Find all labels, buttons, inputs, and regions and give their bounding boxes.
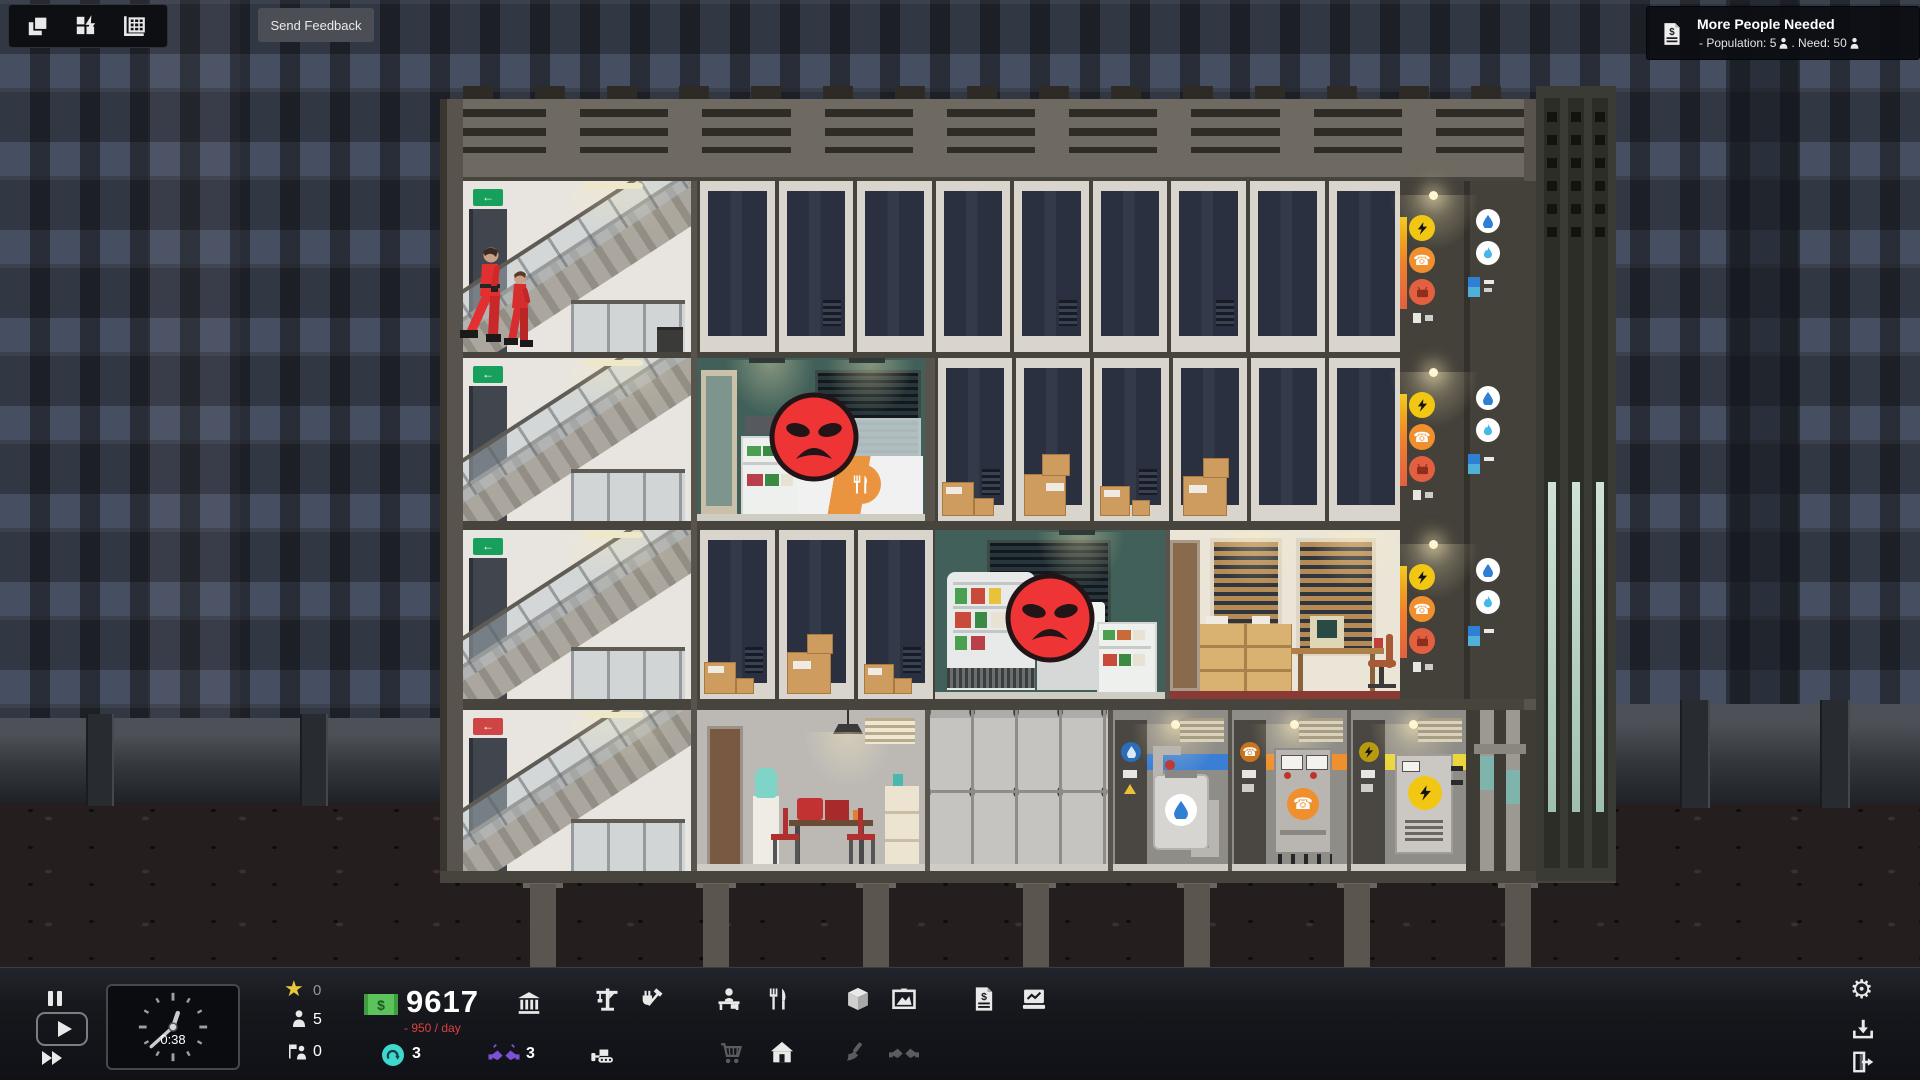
- support-pillar: [703, 884, 729, 970]
- exit-sign: ←: [473, 366, 503, 383]
- stairwell-floor2[interactable]: ←: [463, 358, 691, 521]
- exit-sign: ←: [473, 538, 503, 555]
- shaft-equipment: [1468, 464, 1480, 474]
- cable-utility-icon[interactable]: [1409, 628, 1435, 654]
- water-utility-icon[interactable]: [1476, 558, 1500, 582]
- angry-tenant-alert[interactable]: [1003, 571, 1097, 665]
- consultants-value: 3: [526, 1045, 535, 1063]
- cashflow-value: - 950 / day: [404, 1021, 461, 1035]
- need-text: . Need: 50: [1791, 36, 1846, 50]
- ceiling-light: [585, 532, 643, 538]
- shaft-equipment: [1468, 636, 1480, 646]
- right-facade: [1536, 86, 1616, 881]
- stats-console-icon[interactable]: [1019, 984, 1049, 1014]
- water-utility-room[interactable]: [1113, 710, 1228, 871]
- vent-grille: [1418, 718, 1462, 742]
- shaft-divider: [1464, 181, 1470, 699]
- workers-walking[interactable]: [458, 240, 548, 352]
- contracts-menu-icon[interactable]: $: [969, 984, 999, 1014]
- star-rating-icon: ★: [284, 976, 304, 1002]
- construction-menu-icon[interactable]: [592, 984, 622, 1014]
- pipe-coupling: [1680, 700, 1710, 808]
- demolish-menu-icon[interactable]: [588, 1038, 618, 1068]
- gas-utility-icon[interactable]: [1476, 241, 1500, 265]
- support-pillar: [1344, 884, 1370, 970]
- utility-door: [1353, 720, 1385, 871]
- empty-units-floor2[interactable]: [935, 358, 1406, 521]
- floor-slab: [446, 521, 1536, 530]
- deals-menu-icon[interactable]: [889, 1038, 919, 1068]
- play-icon: [58, 1021, 72, 1037]
- shaft-label: [1484, 288, 1492, 292]
- wall-switch: [1413, 313, 1421, 323]
- angry-tenant-alert[interactable]: [767, 390, 861, 484]
- shaft-label: [1484, 280, 1494, 284]
- floor-slab: [446, 699, 1536, 710]
- water-cooler-bottle: [755, 768, 777, 798]
- landing-glass-rail: [571, 819, 685, 871]
- game-clock: 0:38: [106, 984, 240, 1070]
- utility-meter-strip: [1400, 394, 1407, 486]
- svg-text:$: $: [1669, 27, 1675, 38]
- shaft-label: [1484, 629, 1494, 633]
- population-text: - Population: 5: [1699, 36, 1776, 50]
- workers-icon: [288, 1043, 308, 1061]
- landing-glass-rail: [571, 647, 685, 699]
- cable-utility-icon[interactable]: [1409, 279, 1435, 305]
- shaft-label: [1484, 457, 1494, 461]
- overlay-toolbar: [8, 4, 168, 48]
- power-utility-icon[interactable]: [1409, 392, 1435, 418]
- notification-detail: - Population: 5 . Need: 50: [1699, 36, 1859, 50]
- power-overlay-icon[interactable]: [71, 11, 101, 41]
- basement-pipe-bay: [1466, 710, 1536, 871]
- exit-sign: ←: [473, 189, 503, 206]
- water-utility-icon[interactable]: [1476, 209, 1500, 233]
- empty-units-floor3[interactable]: [697, 181, 1406, 352]
- pipe-coupling: [300, 714, 328, 806]
- renovate-menu-icon[interactable]: [839, 1038, 869, 1068]
- game-screen: ← ← ← ←: [0, 0, 1920, 1080]
- dollar-sign: $: [377, 997, 385, 1013]
- pipe-coupling: [1820, 700, 1850, 808]
- wall-switch: [1425, 664, 1433, 670]
- warning-triangle: [1124, 784, 1136, 794]
- shaft-equipment: [1468, 454, 1480, 464]
- floor-slab: [440, 871, 1616, 883]
- snack-shelf: [1097, 622, 1157, 694]
- empty-units-floor1[interactable]: [697, 530, 936, 699]
- support-pillar: [863, 884, 889, 970]
- phone-utility-icon[interactable]: ☎: [1409, 424, 1435, 450]
- shopping-menu-icon[interactable]: [716, 1038, 746, 1068]
- vent-grille: [1299, 718, 1343, 742]
- chair: [769, 806, 801, 870]
- ceiling-light: [585, 183, 643, 189]
- shaft-equipment: [1468, 626, 1480, 636]
- shaft-equipment: [1468, 277, 1480, 287]
- roof-louver-band: [446, 99, 1536, 177]
- ceiling-light: [585, 360, 643, 366]
- phone-utility-icon[interactable]: ☎: [1409, 596, 1435, 622]
- consultants-icon: [488, 1044, 520, 1066]
- pause-button[interactable]: [46, 991, 68, 1007]
- fast-forward-button[interactable]: [42, 1051, 72, 1066]
- street-pipe-right: [1610, 704, 1920, 804]
- break-room[interactable]: [697, 710, 925, 871]
- left-outer-edge: [440, 99, 447, 871]
- pipe-coupling: [86, 714, 114, 806]
- send-feedback-button[interactable]: Send Feedback: [258, 8, 374, 42]
- settings-gear-icon[interactable]: ⚙: [1850, 976, 1873, 1002]
- star-rating-value: 0: [313, 982, 321, 999]
- person-icon: [1779, 37, 1788, 50]
- water-utility-icon[interactable]: [1476, 386, 1500, 410]
- ceiling-lamp: [849, 358, 885, 363]
- power-utility-icon[interactable]: [1409, 215, 1435, 241]
- materials-value: 3: [412, 1045, 421, 1063]
- phone-utility-icon[interactable]: ☎: [1409, 247, 1435, 273]
- ceiling-lamp: [749, 358, 785, 363]
- save-download-icon[interactable]: [1848, 1014, 1878, 1044]
- gas-utility-icon[interactable]: [1476, 590, 1500, 614]
- vent-grille: [1180, 718, 1224, 742]
- population-value: 5: [313, 1011, 322, 1029]
- apartments-menu-icon[interactable]: [767, 1038, 797, 1068]
- pressure-gauge: [1165, 760, 1175, 770]
- utility-meter-strip: [1400, 566, 1407, 658]
- support-pillar: [530, 884, 556, 970]
- population-icon: [292, 1010, 306, 1028]
- storage-room[interactable]: [930, 710, 1108, 871]
- wall-switch: [1413, 490, 1421, 500]
- trash-bin: [657, 327, 683, 352]
- money-value: 9617: [406, 984, 479, 1020]
- person-icon: [1850, 37, 1859, 50]
- play-button[interactable]: [36, 1012, 88, 1046]
- left-wall: [447, 99, 463, 871]
- gas-utility-icon[interactable]: [1476, 418, 1500, 442]
- stairwell-floor1[interactable]: ←: [463, 530, 691, 699]
- support-pillar: [1023, 884, 1049, 970]
- ceiling-lamp: [1059, 530, 1095, 535]
- shop-door-glass: [706, 376, 732, 506]
- utility-door: [1115, 720, 1147, 871]
- clock-time: 0:38: [108, 1032, 238, 1047]
- computer: [1310, 616, 1344, 648]
- unit-wall: [925, 358, 935, 521]
- utilities-menu-icon[interactable]: [637, 984, 667, 1014]
- finance-doc-icon: $: [1659, 21, 1685, 47]
- svg-text:$: $: [981, 991, 987, 1003]
- power-icon: [1359, 742, 1379, 762]
- basement-sign: ←: [473, 718, 503, 735]
- city-building-shade-left: [148, 0, 240, 760]
- breaker-panel: [1395, 754, 1453, 854]
- notification-title: More People Needed: [1697, 16, 1835, 32]
- materials-icon: [382, 1044, 404, 1066]
- chair: [845, 806, 877, 870]
- city-building-shade-right: [1726, 0, 1798, 760]
- power-utility-icon[interactable]: [1409, 564, 1435, 590]
- workers-value: 0: [313, 1043, 322, 1061]
- phone-switchboard: ☎: [1274, 748, 1332, 854]
- phone-utility-room[interactable]: ☎ ☎: [1232, 710, 1347, 871]
- offices-menu-icon[interactable]: [714, 984, 744, 1014]
- vent: [865, 718, 915, 744]
- water-pump: [1153, 774, 1209, 850]
- utility-meter-strip: [1400, 217, 1407, 309]
- electric-utility-room[interactable]: [1351, 710, 1466, 871]
- room-door: [707, 726, 743, 871]
- landing-glass-rail: [571, 469, 685, 521]
- wall-switch: [1413, 662, 1421, 672]
- support-pillar: [1505, 884, 1531, 970]
- utility-door: ☎: [1234, 720, 1266, 871]
- office-door: [1170, 540, 1200, 691]
- roofline: [463, 86, 1523, 99]
- water-icon: [1121, 742, 1141, 762]
- exit-door-icon[interactable]: [1848, 1047, 1878, 1077]
- support-pillar: [1184, 884, 1210, 970]
- pencil-cup: [893, 774, 903, 786]
- street-pipe-left: [0, 718, 447, 802]
- decor-menu-icon[interactable]: [889, 984, 919, 1014]
- food-menu-icon[interactable]: [763, 984, 793, 1014]
- ceiling-light: [585, 712, 643, 718]
- goods-menu-icon[interactable]: [843, 984, 873, 1014]
- notification-panel[interactable]: $ More People Needed - Population: 5 . N…: [1646, 6, 1920, 60]
- hanging-lamp: [833, 724, 863, 734]
- floor-trim: [1170, 691, 1400, 699]
- office[interactable]: [1170, 530, 1400, 699]
- cabinet: [885, 786, 919, 870]
- cable-utility-icon[interactable]: [1409, 456, 1435, 482]
- money-bill-icon: $: [364, 994, 398, 1015]
- building-overlay-icon[interactable]: [119, 11, 149, 41]
- office-chair: [1366, 634, 1400, 692]
- file-cabinets: [1200, 624, 1292, 692]
- layers-overlay-icon[interactable]: [23, 11, 53, 41]
- wall-switch: [1425, 492, 1433, 498]
- wall-switch: [1425, 315, 1433, 321]
- shaft-equipment: [1468, 287, 1480, 297]
- phone-icon: ☎: [1240, 742, 1260, 762]
- stairwell-basement[interactable]: ←: [463, 710, 691, 871]
- bank-icon[interactable]: [514, 988, 544, 1018]
